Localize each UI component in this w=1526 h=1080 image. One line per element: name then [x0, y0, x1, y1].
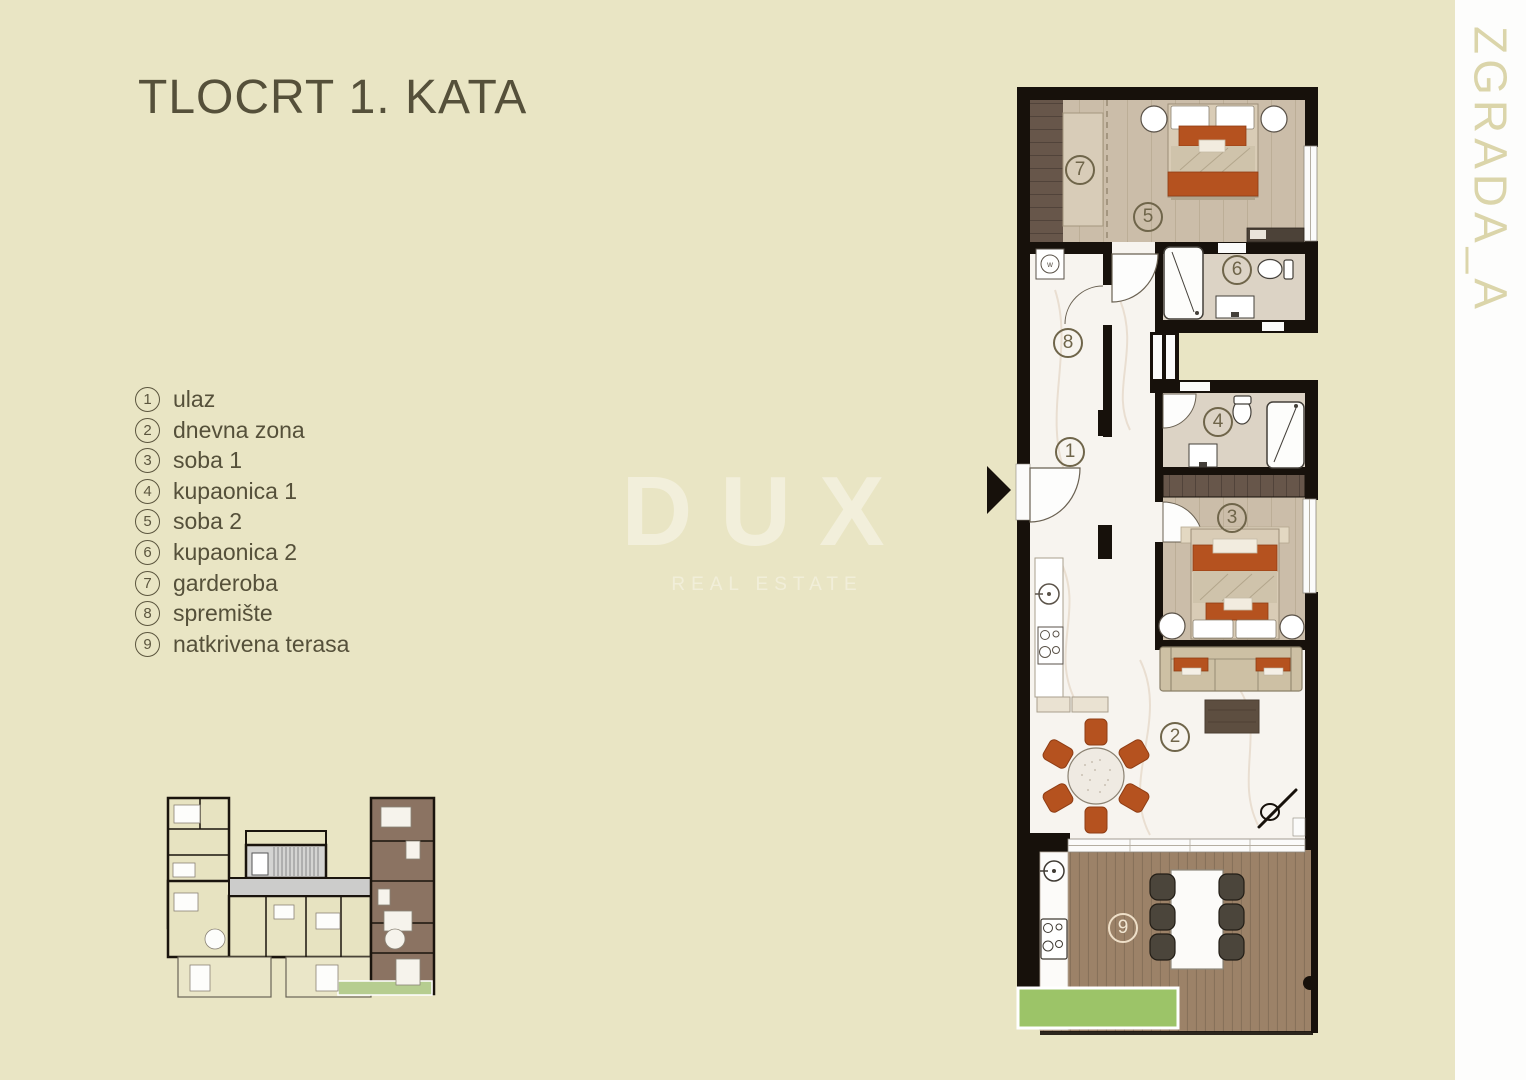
legend-number-badge: 4	[135, 479, 160, 504]
legend-label: dnevna zona	[173, 417, 305, 444]
legend-item: 4 kupaonica 1	[135, 479, 349, 504]
room-marker-3: 3	[1217, 503, 1247, 533]
storage-room-furniture: w	[1036, 249, 1064, 279]
room-marker-4: 4	[1203, 407, 1233, 437]
page-title: TLOCRT 1. KATA	[138, 70, 527, 125]
legend-number-badge: 8	[135, 601, 160, 626]
room-marker-8: 8	[1053, 328, 1083, 358]
legend-label: spremište	[173, 600, 273, 627]
room-marker-6: 6	[1222, 255, 1252, 285]
legend-item: 3 soba 1	[135, 448, 349, 473]
legend-item: 5 soba 2	[135, 509, 349, 534]
entrance-arrow-icon	[987, 466, 1011, 514]
legend-label: soba 1	[173, 447, 242, 474]
legend-item: 6 kupaonica 2	[135, 540, 349, 565]
legend-number-badge: 1	[135, 387, 160, 412]
legend-item: 8 spremište	[135, 601, 349, 626]
washer-label: w	[1046, 260, 1053, 269]
legend-number-badge: 9	[135, 632, 160, 657]
legend-number-badge: 6	[135, 540, 160, 565]
legend-item: 1 ulaz	[135, 387, 349, 412]
watermark-tagline: REAL ESTATE	[612, 574, 922, 596]
terrace-dot	[1303, 976, 1317, 990]
legend-item: 9 natkrivena terasa	[135, 632, 349, 657]
legend-item: 7 garderoba	[135, 571, 349, 596]
legend-label: soba 2	[173, 508, 242, 535]
legend-label: kupaonica 2	[173, 539, 297, 566]
room-marker-5: 5	[1133, 202, 1163, 232]
legend-number-badge: 5	[135, 509, 160, 534]
overview-floor-plan	[166, 793, 440, 1005]
legend-label: garderoba	[173, 570, 278, 597]
legend-label: ulaz	[173, 386, 215, 413]
right-margin-strip: ZGRADA_A	[1455, 0, 1526, 1080]
legend-label: kupaonica 1	[173, 478, 297, 505]
planter	[1018, 988, 1178, 1028]
watermark-brand: DUX	[612, 462, 922, 560]
room-marker-1: 1	[1055, 437, 1085, 467]
legend-number-badge: 7	[135, 571, 160, 596]
watermark: DUX REAL ESTATE	[612, 462, 922, 596]
legend-number-badge: 2	[135, 418, 160, 443]
page: ZGRADA_A TLOCRT 1. KATA DUX REAL ESTATE …	[0, 0, 1526, 1080]
room-marker-2: 2	[1160, 722, 1190, 752]
room-marker-7: 7	[1065, 155, 1095, 185]
building-label: ZGRADA_A	[1464, 26, 1518, 314]
legend-number-badge: 3	[135, 448, 160, 473]
legend: 1 ulaz 2 dnevna zona 3 soba 1 4 kupaonic…	[135, 387, 349, 657]
legend-label: natkrivena terasa	[173, 631, 349, 658]
room-marker-9: 9	[1108, 913, 1138, 943]
legend-item: 2 dnevna zona	[135, 418, 349, 443]
